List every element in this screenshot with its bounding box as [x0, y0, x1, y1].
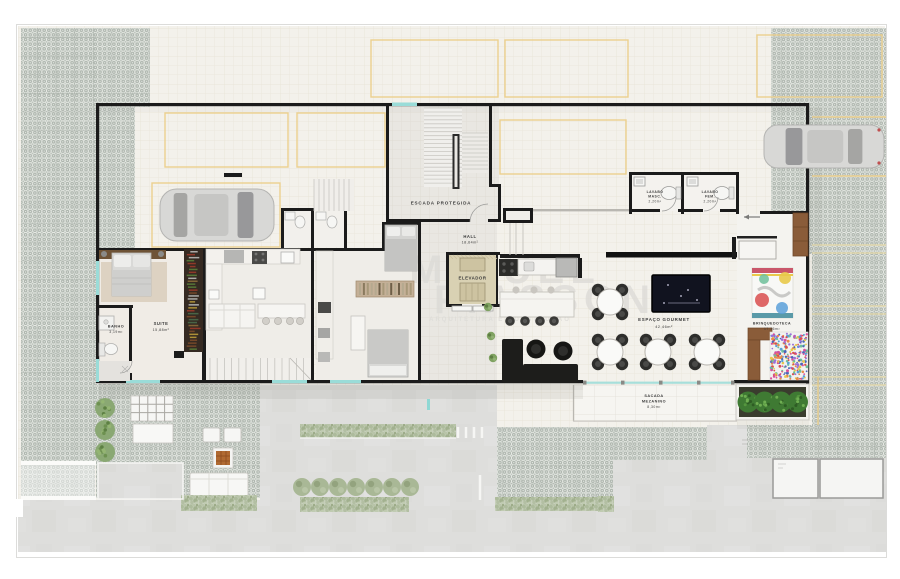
svg-text:8,30m²: 8,30m² — [647, 405, 661, 409]
svg-text:ELEVADOR: ELEVADOR — [458, 276, 486, 281]
svg-text:17,36m²: 17,36m² — [764, 327, 780, 331]
svg-text:MEZANINO: MEZANINO — [642, 400, 666, 404]
svg-text:3,19m²: 3,19m² — [109, 330, 123, 334]
svg-text:SACADA: SACADA — [644, 394, 663, 398]
svg-text:ESCADA PROTEGIDA: ESCADA PROTEGIDA — [411, 201, 472, 206]
svg-text:MASC.: MASC. — [648, 195, 661, 199]
svg-text:BRINQUEDOTECA: BRINQUEDOTECA — [753, 322, 791, 326]
svg-text:LAVABO: LAVABO — [702, 190, 719, 194]
svg-text:15,88m²: 15,88m² — [153, 328, 170, 332]
svg-text:2,20m²: 2,20m² — [704, 200, 717, 204]
svg-text:BANHO: BANHO — [108, 325, 124, 329]
svg-text:LAVABO: LAVABO — [647, 190, 664, 194]
svg-text:42,46m²: 42,46m² — [655, 325, 673, 329]
svg-text:SUITE: SUITE — [154, 321, 169, 326]
svg-text:ESPAÇO GOURMET: ESPAÇO GOURMET — [638, 317, 690, 322]
svg-text:2,20m²: 2,20m² — [649, 200, 662, 204]
svg-text:FEM.: FEM. — [705, 195, 715, 199]
svg-text:18,64m²: 18,64m² — [462, 241, 479, 245]
svg-text:HALL: HALL — [463, 234, 476, 239]
